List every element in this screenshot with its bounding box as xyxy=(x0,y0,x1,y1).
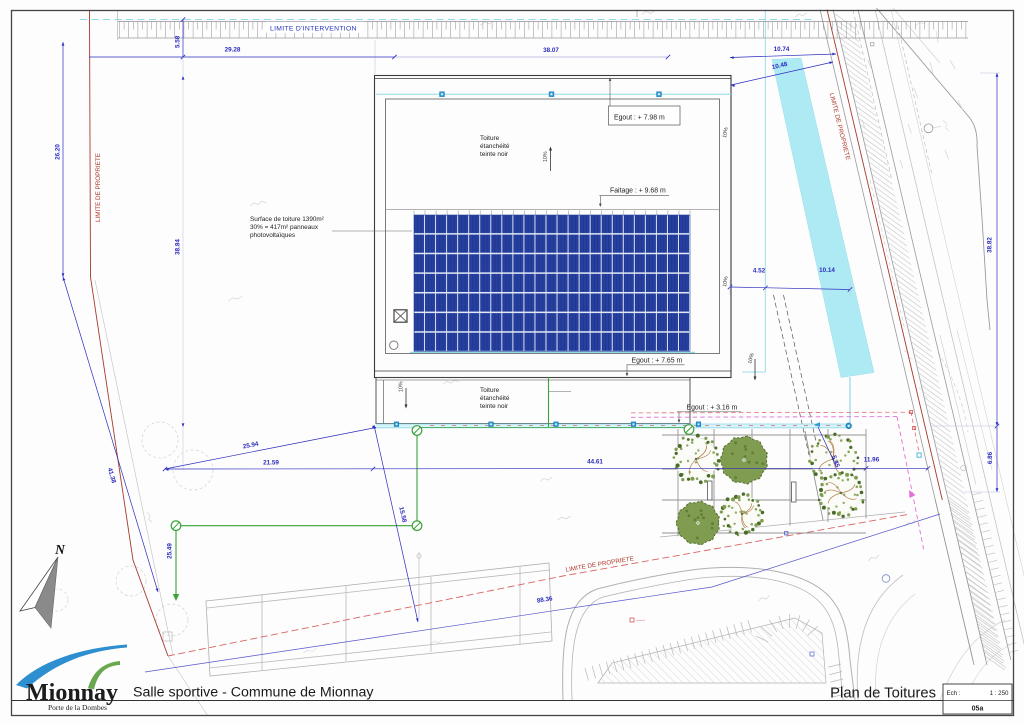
svg-text:1 : 250: 1 : 250 xyxy=(990,690,1009,697)
svg-text:11.96: 11.96 xyxy=(864,457,880,464)
svg-text:LIMITE DE PROPRIETE: LIMITE DE PROPRIETE xyxy=(95,153,102,222)
svg-text:Ech :: Ech : xyxy=(947,690,961,697)
svg-text:teinte noir: teinte noir xyxy=(480,151,509,158)
svg-text:44.61: 44.61 xyxy=(587,459,603,466)
svg-text:Plan de Toitures: Plan de Toitures xyxy=(830,686,936,702)
svg-text:10.74: 10.74 xyxy=(774,46,790,53)
svg-text:10.14: 10.14 xyxy=(819,267,835,274)
svg-text:Toiture: Toiture xyxy=(480,387,500,394)
svg-text:30% = 417m² panneaux: 30% = 417m² panneaux xyxy=(250,224,319,231)
svg-text:21.59: 21.59 xyxy=(263,459,279,466)
svg-text:5.58: 5.58 xyxy=(175,35,182,48)
svg-text:Porte de la Dombes: Porte de la Dombes xyxy=(48,703,107,712)
svg-text:10%: 10% xyxy=(543,151,549,162)
svg-text:Egout : + 7.98 m: Egout : + 7.98 m xyxy=(614,115,665,122)
svg-text:10%: 10% xyxy=(399,381,405,392)
svg-text:Salle sportive - Commune de Mi: Salle sportive - Commune de Mionnay xyxy=(133,685,374,701)
svg-text:Egout : + 3.16 m: Egout : + 3.16 m xyxy=(687,405,738,412)
svg-text:38.07: 38.07 xyxy=(543,47,559,54)
svg-text:25.49: 25.49 xyxy=(167,543,174,559)
svg-text:38.84: 38.84 xyxy=(175,239,182,255)
svg-text:LIMITE D'INTERVENTION: LIMITE D'INTERVENTION xyxy=(270,25,357,32)
svg-text:photovoltaïques: photovoltaïques xyxy=(250,232,295,239)
svg-text:N: N xyxy=(54,542,66,557)
svg-text:6.86: 6.86 xyxy=(987,451,994,464)
svg-text:étanchéité: étanchéité xyxy=(480,395,510,402)
svg-text:38.82: 38.82 xyxy=(987,237,994,253)
svg-text:Toiture: Toiture xyxy=(480,135,500,142)
svg-text:étanchéité: étanchéité xyxy=(480,143,510,150)
svg-text:Egout : + 7.65 m: Egout : + 7.65 m xyxy=(632,357,683,364)
svg-text:4.52: 4.52 xyxy=(753,268,766,275)
svg-text:Surface de toiture 1390m²: Surface de toiture 1390m² xyxy=(250,216,324,223)
svg-text:26.20: 26.20 xyxy=(55,144,62,160)
svg-text:05a: 05a xyxy=(972,706,984,713)
svg-text:Faitage : + 9.68 m: Faitage : + 9.68 m xyxy=(610,187,666,194)
svg-text:teinte noir: teinte noir xyxy=(480,403,509,410)
svg-text:29.28: 29.28 xyxy=(225,47,241,54)
